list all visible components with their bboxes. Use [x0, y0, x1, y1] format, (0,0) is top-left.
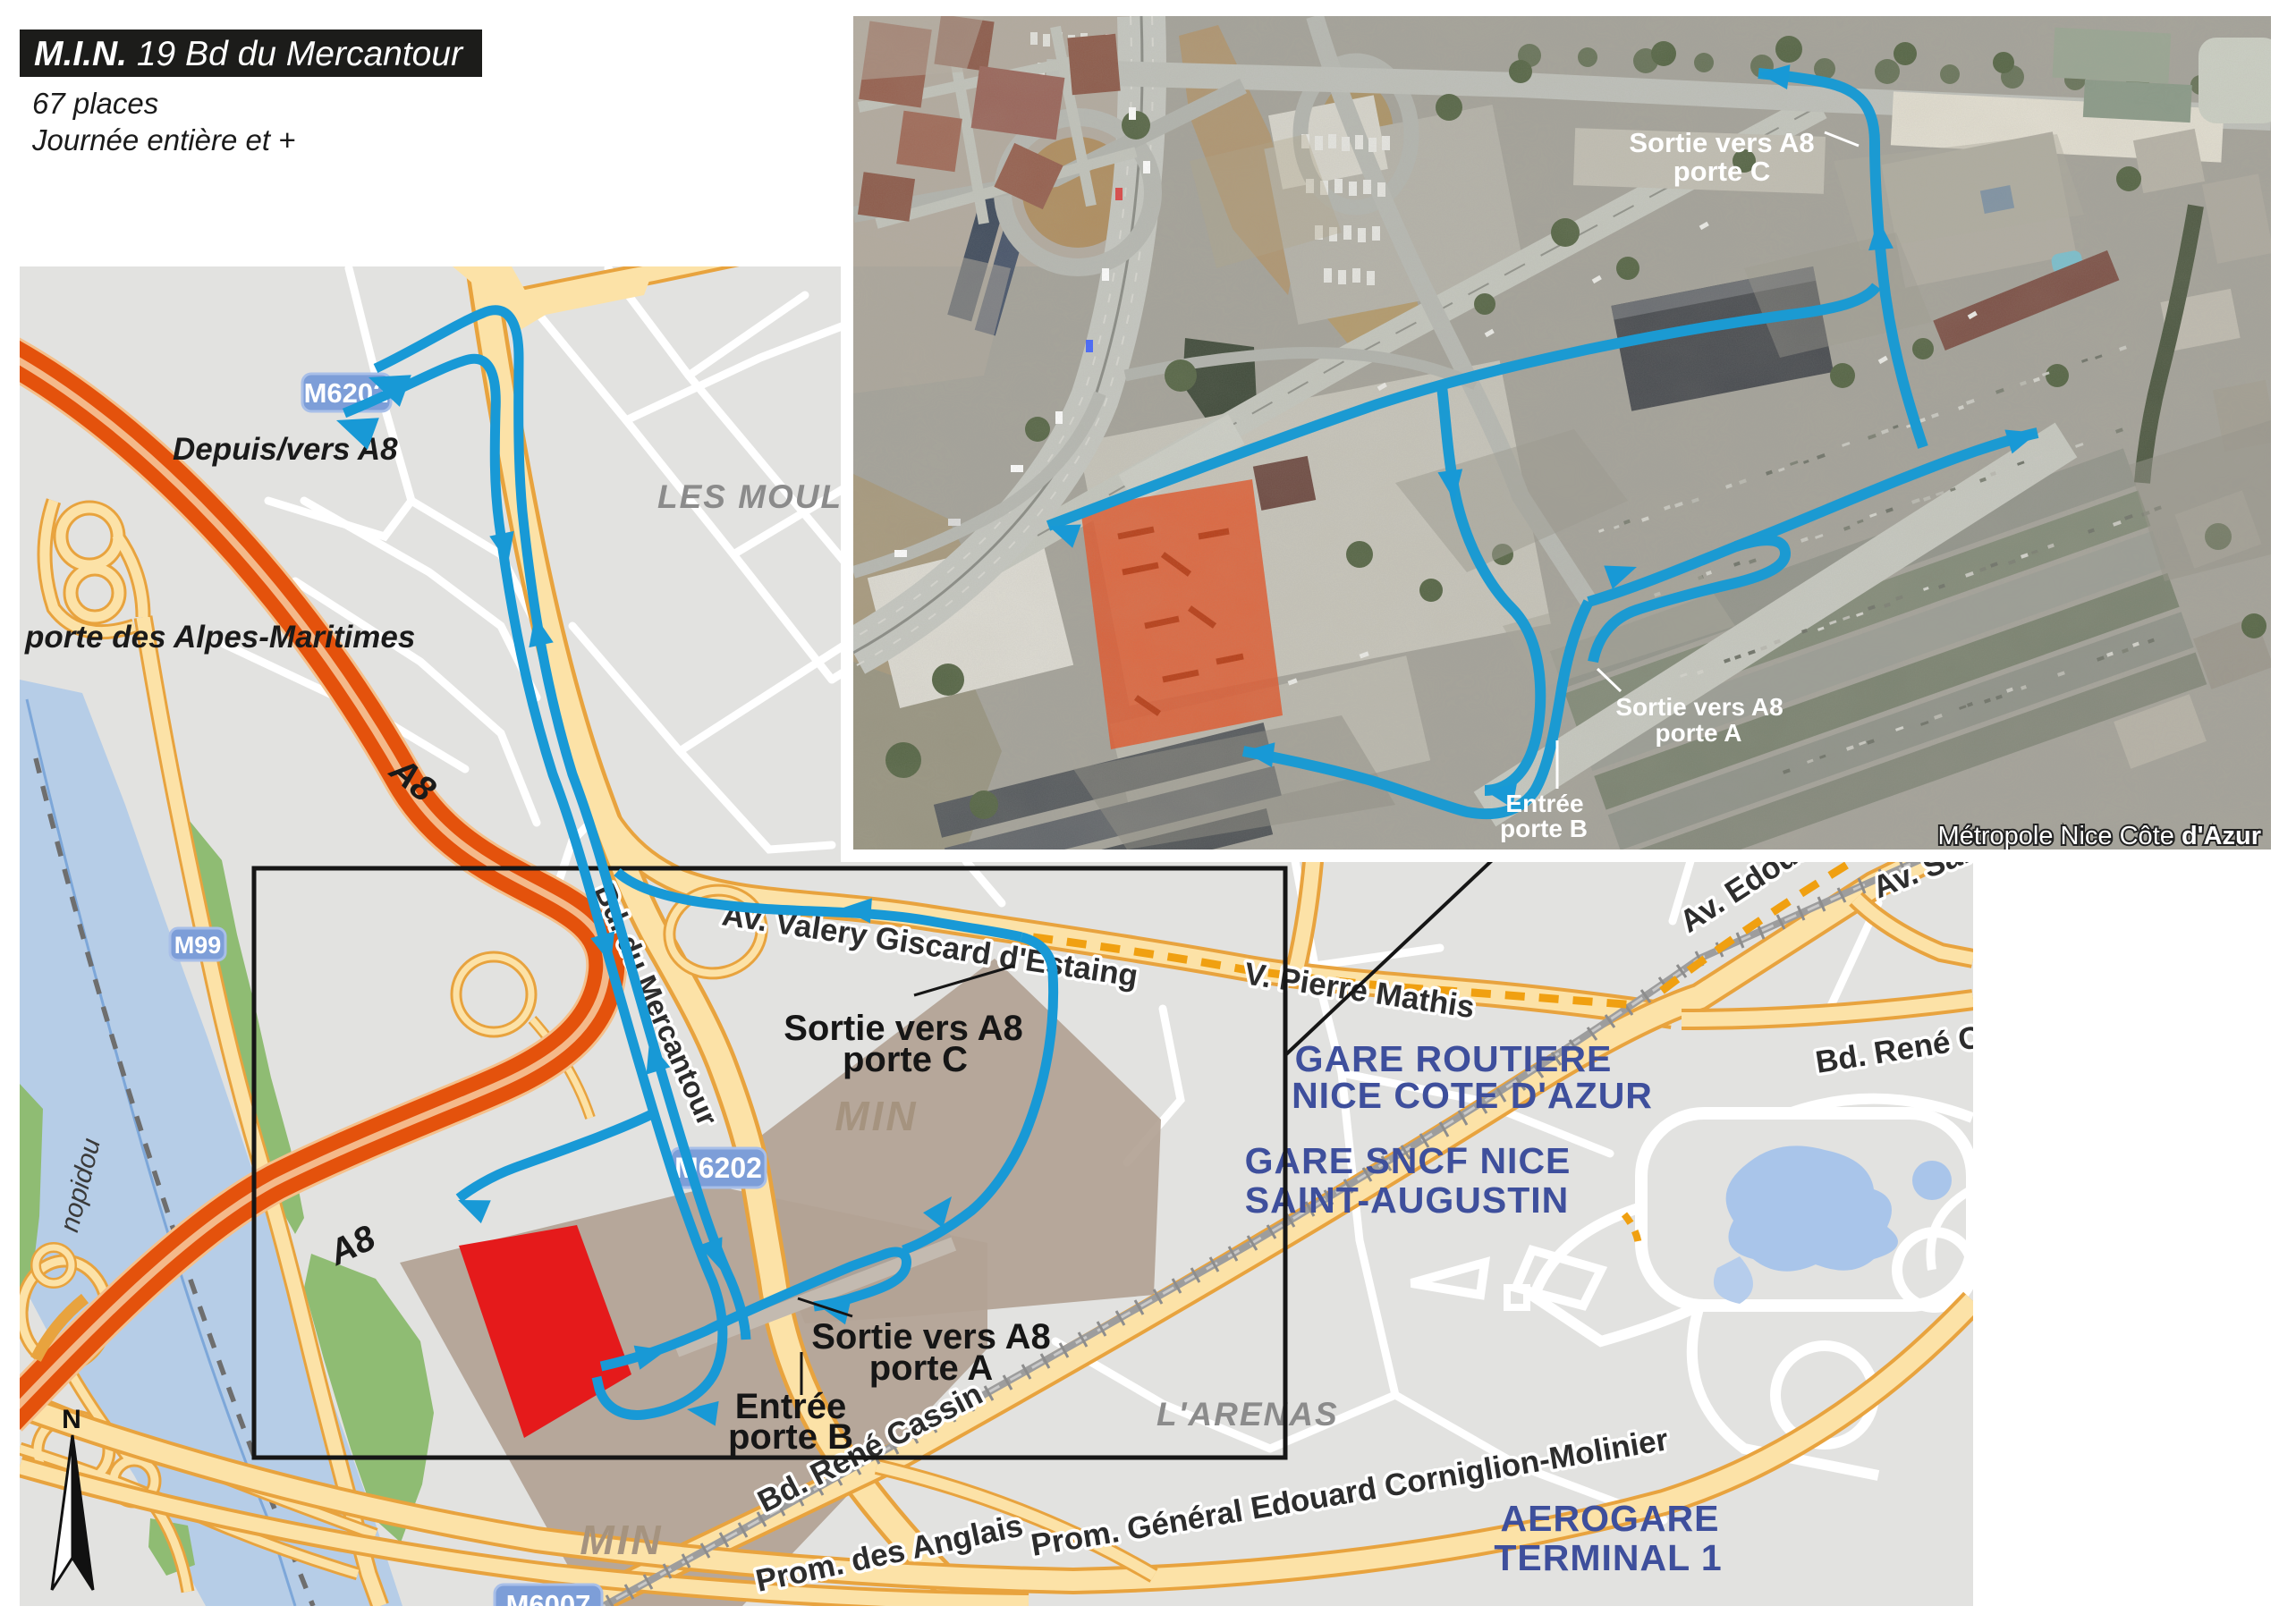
- svg-text:porte A: porte A: [1656, 719, 1742, 747]
- svg-text:porte C: porte C: [1673, 156, 1771, 187]
- svg-text:M99: M99: [174, 932, 222, 959]
- svg-text:NICE COTE D'AZUR: NICE COTE D'AZUR: [1292, 1075, 1653, 1116]
- svg-text:MIN: MIN: [835, 1093, 918, 1139]
- svg-text:porte B: porte B: [728, 1417, 853, 1457]
- svg-text:MIN: MIN: [580, 1517, 663, 1563]
- svg-text:SAINT-AUGUSTIN: SAINT-AUGUSTIN: [1245, 1179, 1570, 1221]
- svg-text:L'ARENAS: L'ARENAS: [1156, 1396, 1339, 1433]
- svg-text:GARE SNCF NICE: GARE SNCF NICE: [1245, 1140, 1572, 1181]
- svg-text:porte B: porte B: [1500, 815, 1588, 842]
- svg-text:Sortie vers A8: Sortie vers A8: [1629, 127, 1814, 158]
- svg-text:porte A: porte A: [869, 1348, 994, 1388]
- svg-text:Journée entière et +: Journée entière et +: [31, 123, 295, 156]
- svg-text:67 places: 67 places: [32, 87, 158, 120]
- svg-text:M.I.N. 19 Bd du Mercantour: M.I.N. 19 Bd du Mercantour: [34, 35, 464, 73]
- svg-text:Entrée: Entrée: [1505, 790, 1583, 817]
- svg-text:GARE ROUTIERE: GARE ROUTIERE: [1295, 1038, 1613, 1079]
- svg-text:TERMINAL 1: TERMINAL 1: [1494, 1537, 1722, 1578]
- svg-text:AEROGARE: AEROGARE: [1501, 1498, 1720, 1539]
- svg-text:porte C: porte C: [843, 1040, 968, 1079]
- svg-text:N: N: [62, 1405, 81, 1434]
- svg-text:Métropole Nice Côte d'Azur: Métropole Nice Côte d'Azur: [1938, 822, 2261, 850]
- svg-text:porte des Alpes-Maritimes: porte des Alpes-Maritimes: [24, 620, 415, 655]
- svg-text:Sortie vers A8: Sortie vers A8: [1615, 693, 1783, 721]
